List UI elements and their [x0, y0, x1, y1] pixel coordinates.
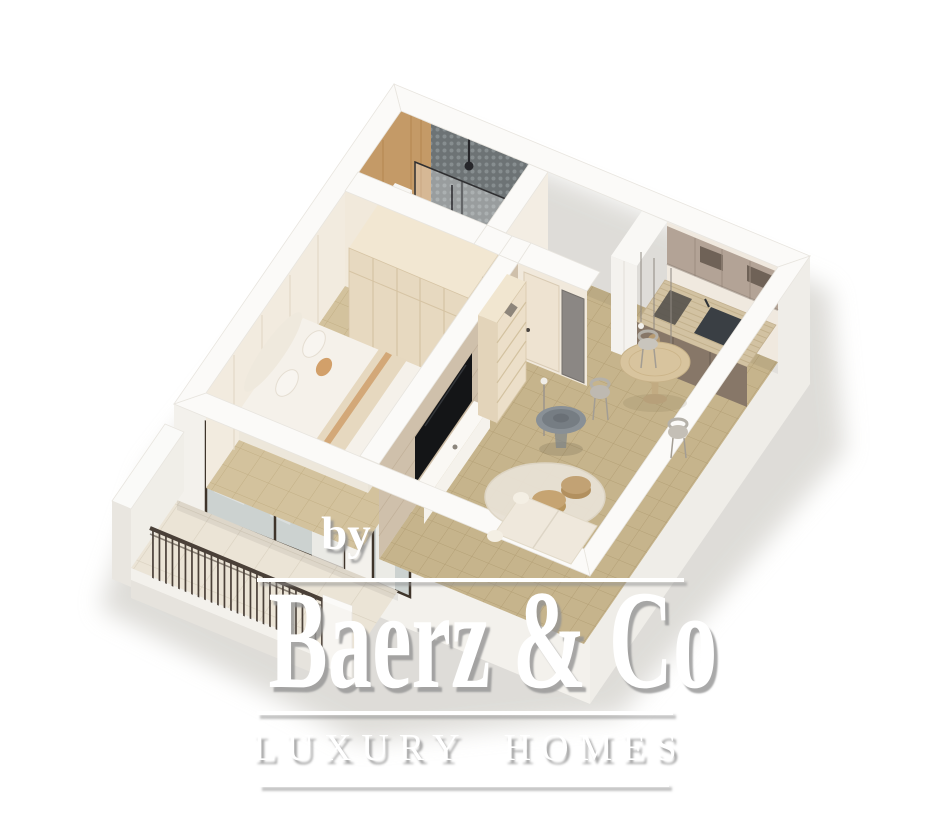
- floor-plan-render: [0, 0, 925, 823]
- hallway-door: [524, 272, 559, 372]
- sliding-panel: [562, 290, 584, 383]
- parapet-east: [323, 595, 352, 678]
- pouf: [561, 476, 591, 499]
- floor-plan-page: by Baerz & Co LUXURY HOMES: [0, 0, 925, 823]
- pendant-white: [638, 323, 644, 329]
